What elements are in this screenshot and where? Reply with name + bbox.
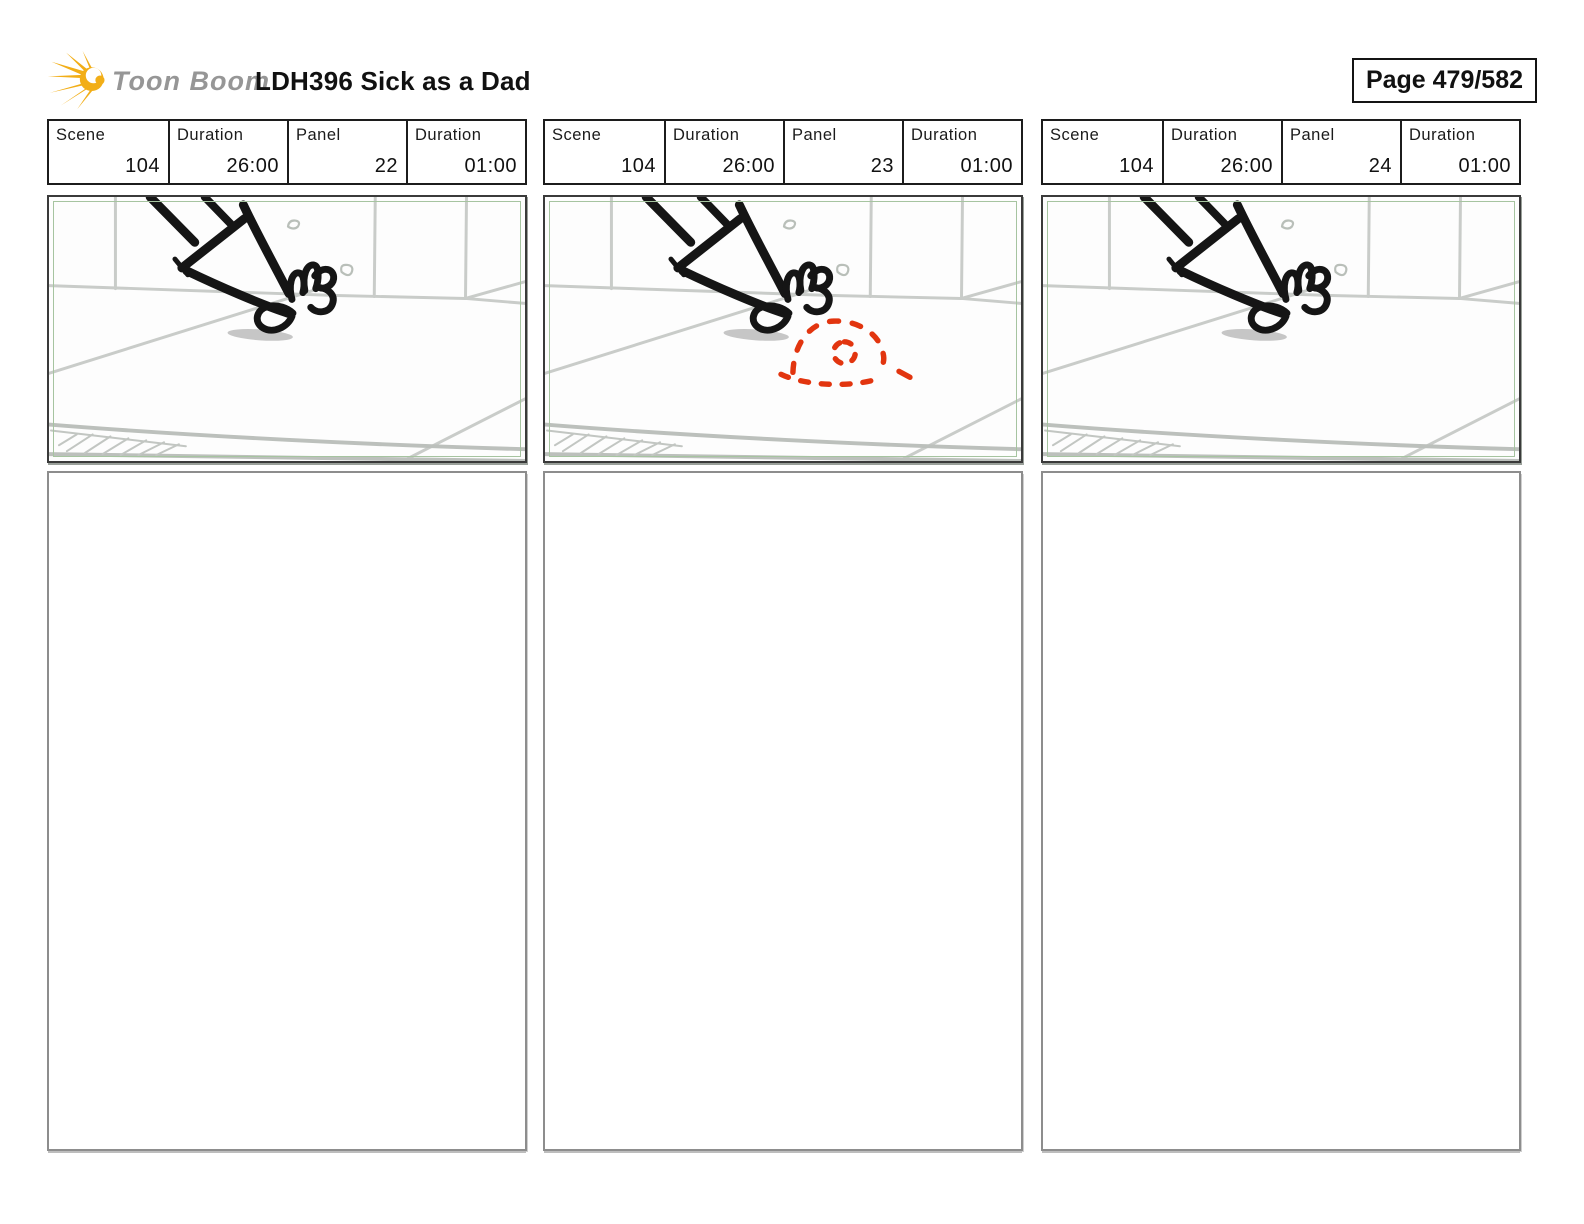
toonboom-logo: Toon Boom [46,50,270,112]
panel-label: Panel [792,126,837,145]
toonboom-starburst-icon [46,50,110,112]
panel-cell: Panel 22 [287,121,406,183]
scene-label: Scene [552,126,601,145]
panel-cell: Panel 23 [783,121,902,183]
scene-duration-cell: Duration 26:00 [664,121,783,183]
scene-label: Scene [56,126,105,145]
scene-cell: Scene 104 [545,121,664,183]
page-number-badge: Page 479/582 [1352,58,1537,103]
panel-value: 24 [1369,155,1392,178]
panel-drawing-frame [47,195,527,463]
storyboard-sketch [1043,197,1519,461]
scene-value: 104 [125,155,160,178]
panel-drawing-frame [1041,195,1521,463]
scene-duration-cell: Duration 26:00 [168,121,287,183]
storyboard-panel-column: Scene 104 Duration 26:00 Panel 23 Durati… [543,119,1023,1151]
panel-duration-value: 01:00 [1458,155,1511,178]
scene-value: 104 [621,155,656,178]
scene-duration-cell: Duration 26:00 [1162,121,1281,183]
panel-value: 22 [375,155,398,178]
storyboard-sketch [545,197,1021,461]
scene-duration-label: Duration [673,126,739,145]
panel-duration-label: Duration [415,126,481,145]
toonboom-logo-text: Toon Boom [112,66,270,97]
scene-duration-value: 26:00 [226,155,279,178]
panel-notes-box [47,471,527,1151]
storyboard-panel-column: Scene 104 Duration 26:00 Panel 22 Durati… [47,119,527,1151]
panel-label: Panel [296,126,341,145]
panel-duration-label: Duration [1409,126,1475,145]
panel-notes-box [1041,471,1521,1151]
scene-value: 104 [1119,155,1154,178]
scene-duration-label: Duration [177,126,243,145]
scene-duration-value: 26:00 [1220,155,1273,178]
storyboard-page: Toon Boom LDH396 Sick as a Dad Page 479/… [0,0,1584,1224]
panel-label: Panel [1290,126,1335,145]
scene-cell: Scene 104 [49,121,168,183]
panel-duration-cell: Duration 01:00 [406,121,525,183]
panel-duration-value: 01:00 [464,155,517,178]
panel-drawing-frame [543,195,1023,463]
panel-notes-box [543,471,1023,1151]
panel-meta-table: Scene 104 Duration 26:00 Panel 23 Durati… [543,119,1023,185]
panel-duration-value: 01:00 [960,155,1013,178]
panel-meta-table: Scene 104 Duration 26:00 Panel 22 Durati… [47,119,527,185]
panel-duration-label: Duration [911,126,977,145]
project-title: LDH396 Sick as a Dad [255,66,531,97]
storyboard-panel-column: Scene 104 Duration 26:00 Panel 24 Durati… [1041,119,1521,1151]
panel-duration-cell: Duration 01:00 [1400,121,1519,183]
panel-meta-table: Scene 104 Duration 26:00 Panel 24 Durati… [1041,119,1521,185]
scene-duration-value: 26:00 [722,155,775,178]
scene-cell: Scene 104 [1043,121,1162,183]
scene-duration-label: Duration [1171,126,1237,145]
panel-cell: Panel 24 [1281,121,1400,183]
panel-value: 23 [871,155,894,178]
red-scribble-overlay [781,321,910,384]
panel-duration-cell: Duration 01:00 [902,121,1021,183]
scene-label: Scene [1050,126,1099,145]
storyboard-sketch [49,197,525,461]
